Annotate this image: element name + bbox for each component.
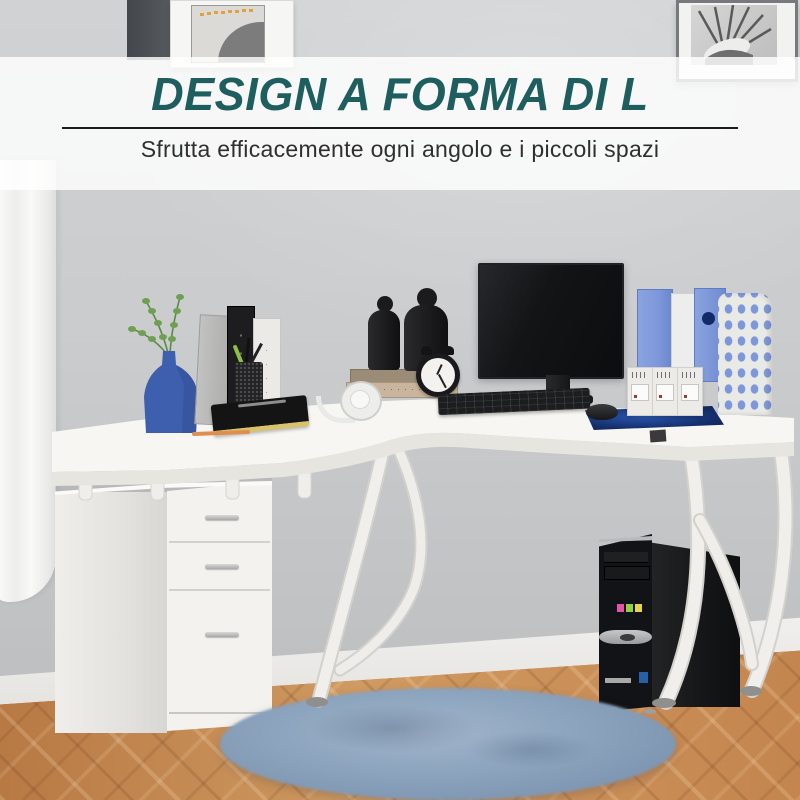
organizer-drawer [653, 368, 678, 415]
organizer-drawer [678, 368, 702, 415]
drawer-handle-bottom [205, 632, 239, 637]
binder-finger-hole [702, 312, 715, 325]
art-orange-dash [242, 9, 246, 12]
organizer-drawer [628, 368, 653, 415]
headphones-earcup-pad [350, 390, 370, 409]
pc-sticker-yellow [635, 604, 642, 612]
clock-minute-hand [438, 374, 447, 388]
art-orange-dash [221, 11, 225, 14]
drawer-gap [169, 589, 270, 591]
sheer-curtain [0, 160, 56, 602]
drawer-gap [169, 541, 270, 543]
pc-drive-bay [604, 566, 650, 580]
sculpture-small-body [368, 310, 400, 370]
organizer-vent [657, 372, 671, 378]
art-orange-dash [200, 13, 204, 16]
organizer-vent [682, 372, 696, 378]
organizer-label [681, 384, 699, 401]
mesh-pen-cup [235, 362, 263, 404]
art-orange-dash [228, 10, 232, 13]
overlay-subtitle: Sfrutta efficacemente ogni angolo e i pi… [141, 136, 660, 163]
art-orange-dash [249, 9, 253, 12]
pc-sticker-blue [639, 672, 648, 683]
pc-sticker-green [626, 604, 633, 612]
art-orange-dash [214, 11, 218, 14]
title-divider-line [62, 127, 738, 129]
art-orange-dash [207, 12, 211, 15]
alarm-clock-face [421, 358, 455, 392]
organizer-vent [632, 372, 646, 378]
pc-brand-label [605, 678, 631, 683]
pc-power-button [620, 634, 635, 641]
pc-stickers [617, 604, 647, 612]
organizer-label [631, 384, 649, 401]
drawer-handle-middle [205, 564, 239, 569]
pc-foot [644, 709, 656, 714]
pc-sticker-pink [617, 604, 624, 612]
mouse [586, 404, 618, 420]
dark-picture-frame [127, 0, 170, 60]
cabinet-side-panel [55, 492, 167, 733]
text-overlay-band: DESIGN A FORMA DI L Sfrutta efficacement… [0, 57, 800, 190]
pc-tower-side [650, 528, 740, 707]
spiral-staircase-photo [691, 5, 777, 65]
round-fluffy-rug [220, 688, 676, 800]
product-photo-scene: DESIGN A FORMA DI L Sfrutta efficacement… [0, 0, 800, 800]
desktop-organizer-drawers [627, 367, 703, 416]
magazine-file-holder [718, 293, 772, 415]
art-orange-dash [235, 10, 239, 13]
overlay-title: DESIGN A FORMA DI L [151, 71, 649, 117]
monitor [478, 263, 624, 379]
abstract-art [191, 5, 265, 63]
pc-drive-bay [604, 552, 648, 563]
drawer-handle-top [205, 515, 239, 520]
organizer-label [656, 384, 674, 401]
desk-clamp [650, 429, 667, 442]
